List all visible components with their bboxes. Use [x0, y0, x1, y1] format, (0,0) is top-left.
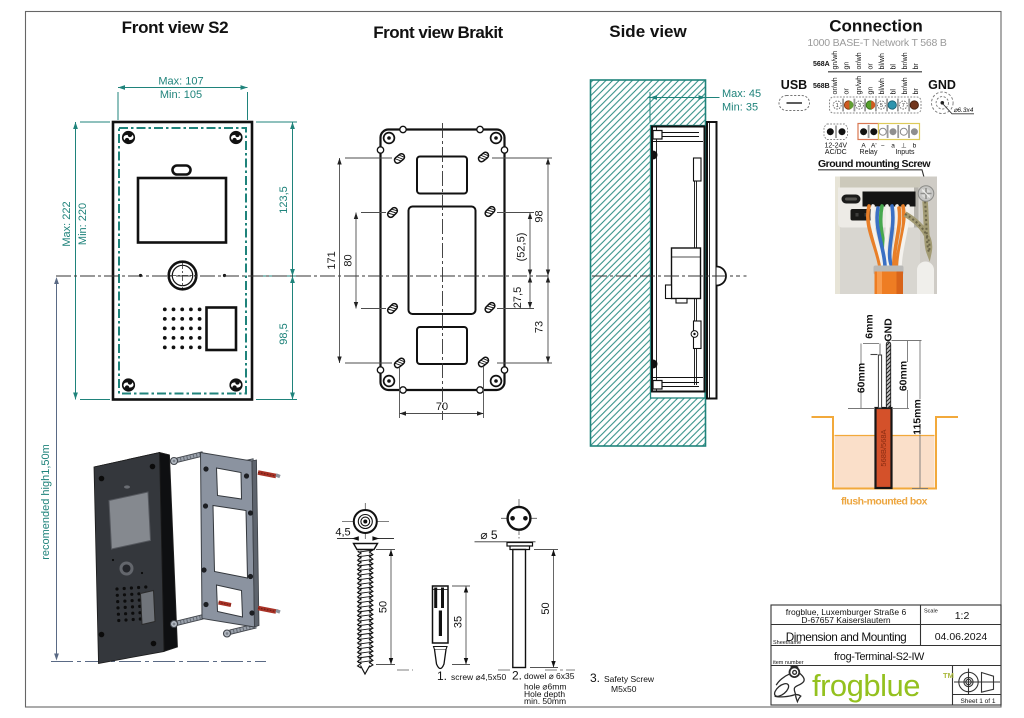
- svg-text:gn/wh: gn/wh: [856, 76, 863, 95]
- svg-text:568B/568A: 568B/568A: [879, 429, 888, 466]
- svg-text:1000 BASE-T Network T 568 B: 1000 BASE-T Network T 568 B: [807, 37, 947, 49]
- svg-text:6mm: 6mm: [864, 314, 876, 339]
- svg-text:−: −: [881, 143, 885, 150]
- svg-text:Side view: Side view: [609, 22, 687, 41]
- svg-text:Front view Brakit: Front view Brakit: [373, 23, 503, 42]
- svg-text:recomended high1,50m: recomended high1,50m: [40, 444, 52, 560]
- svg-text:gn: gn: [844, 62, 851, 70]
- svg-text:USB: USB: [781, 78, 807, 92]
- svg-text:115mm: 115mm: [912, 399, 924, 435]
- svg-text:Front view S2: Front view S2: [122, 18, 229, 37]
- svg-text:br/wh: br/wh: [902, 52, 909, 69]
- svg-text:568A: 568A: [813, 61, 830, 68]
- svg-text:1.: 1.: [437, 669, 447, 683]
- svg-text:D-67657 Kaiserslautern: D-67657 Kaiserslautern: [801, 615, 891, 625]
- svg-text:98: 98: [534, 210, 546, 222]
- svg-text:Sheet 1 of 1: Sheet 1 of 1: [960, 698, 995, 705]
- svg-text:4,5: 4,5: [335, 527, 350, 539]
- svg-text:or: or: [844, 88, 851, 95]
- svg-text:73: 73: [534, 321, 546, 333]
- svg-text:5: 5: [880, 103, 883, 109]
- svg-text:Sheetname: Sheetname: [773, 640, 801, 646]
- svg-text:Max: 107: Max: 107: [158, 76, 203, 88]
- svg-text:98,5: 98,5: [278, 323, 290, 344]
- svg-text:⌀ 5: ⌀ 5: [480, 528, 498, 542]
- svg-text:or: or: [868, 63, 875, 70]
- svg-text:frog-Terminal-S2-IW: frog-Terminal-S2-IW: [834, 651, 925, 663]
- svg-text:bl: bl: [891, 89, 898, 95]
- svg-text:123,5: 123,5: [278, 186, 290, 214]
- svg-text:AC/DC: AC/DC: [825, 149, 847, 156]
- svg-text:(52,5): (52,5): [516, 233, 528, 262]
- svg-text:Max: 222: Max: 222: [61, 201, 73, 246]
- svg-text:bl/wh: bl/wh: [879, 78, 886, 94]
- svg-text:bl/wh: bl/wh: [879, 53, 886, 69]
- svg-text:2.: 2.: [512, 669, 522, 683]
- svg-text:min. 50mm: min. 50mm: [524, 696, 566, 706]
- svg-text:1: 1: [836, 103, 839, 109]
- svg-text:dowel ⌀ 6x35: dowel ⌀ 6x35: [524, 671, 575, 681]
- svg-text:Max: 45: Max: 45: [722, 88, 761, 100]
- svg-text:bl: bl: [891, 64, 898, 70]
- svg-text:27,5: 27,5: [512, 287, 524, 308]
- svg-text:Ground mounting Screw: Ground mounting Screw: [818, 158, 931, 170]
- svg-text:7: 7: [902, 103, 905, 109]
- svg-text:M5x50: M5x50: [611, 684, 637, 694]
- svg-text:br/wh: br/wh: [902, 77, 909, 94]
- svg-text:04.06.2024: 04.06.2024: [935, 631, 988, 643]
- svg-text:568B: 568B: [813, 83, 830, 90]
- svg-text:frogblue: frogblue: [812, 668, 920, 703]
- svg-text:Relay: Relay: [860, 149, 878, 156]
- svg-text:Scale: Scale: [924, 609, 938, 615]
- svg-text:TM: TM: [943, 671, 954, 680]
- svg-text:GND: GND: [883, 318, 895, 342]
- svg-text:70: 70: [436, 401, 448, 413]
- svg-text:GND: GND: [928, 78, 956, 92]
- svg-text:Connection: Connection: [829, 17, 923, 36]
- svg-text:or/wh: or/wh: [856, 52, 863, 69]
- svg-text:Min: 35: Min: 35: [722, 102, 758, 114]
- svg-text:Inputs: Inputs: [895, 149, 915, 156]
- svg-text:flush-mounted box: flush-mounted box: [841, 496, 928, 508]
- svg-text:or/wh: or/wh: [832, 77, 839, 94]
- svg-text:50: 50: [540, 602, 552, 614]
- svg-text:Dimension and Mounting: Dimension and Mounting: [786, 630, 907, 644]
- svg-text:⌀6.3x4: ⌀6.3x4: [954, 107, 974, 114]
- svg-text:br: br: [913, 88, 920, 95]
- svg-text:Min: 220: Min: 220: [77, 203, 89, 245]
- svg-text:35: 35: [453, 616, 465, 628]
- svg-text:Safety Screw: Safety Screw: [604, 674, 655, 684]
- svg-text:gn/wh: gn/wh: [832, 51, 839, 70]
- svg-text:50: 50: [378, 601, 390, 613]
- svg-text:171: 171: [326, 251, 338, 269]
- svg-text:1:2: 1:2: [955, 610, 970, 622]
- svg-text:3: 3: [858, 103, 861, 109]
- svg-text:3.: 3.: [590, 671, 600, 685]
- svg-text:screw ⌀4,5x50: screw ⌀4,5x50: [451, 672, 506, 682]
- svg-text:80: 80: [343, 254, 355, 266]
- svg-text:item number: item number: [773, 660, 804, 666]
- svg-text:br: br: [913, 63, 920, 70]
- svg-text:60mm: 60mm: [856, 363, 868, 393]
- svg-text:Min: 105: Min: 105: [160, 89, 202, 101]
- svg-text:60mm: 60mm: [898, 361, 910, 391]
- svg-text:gn: gn: [868, 87, 875, 95]
